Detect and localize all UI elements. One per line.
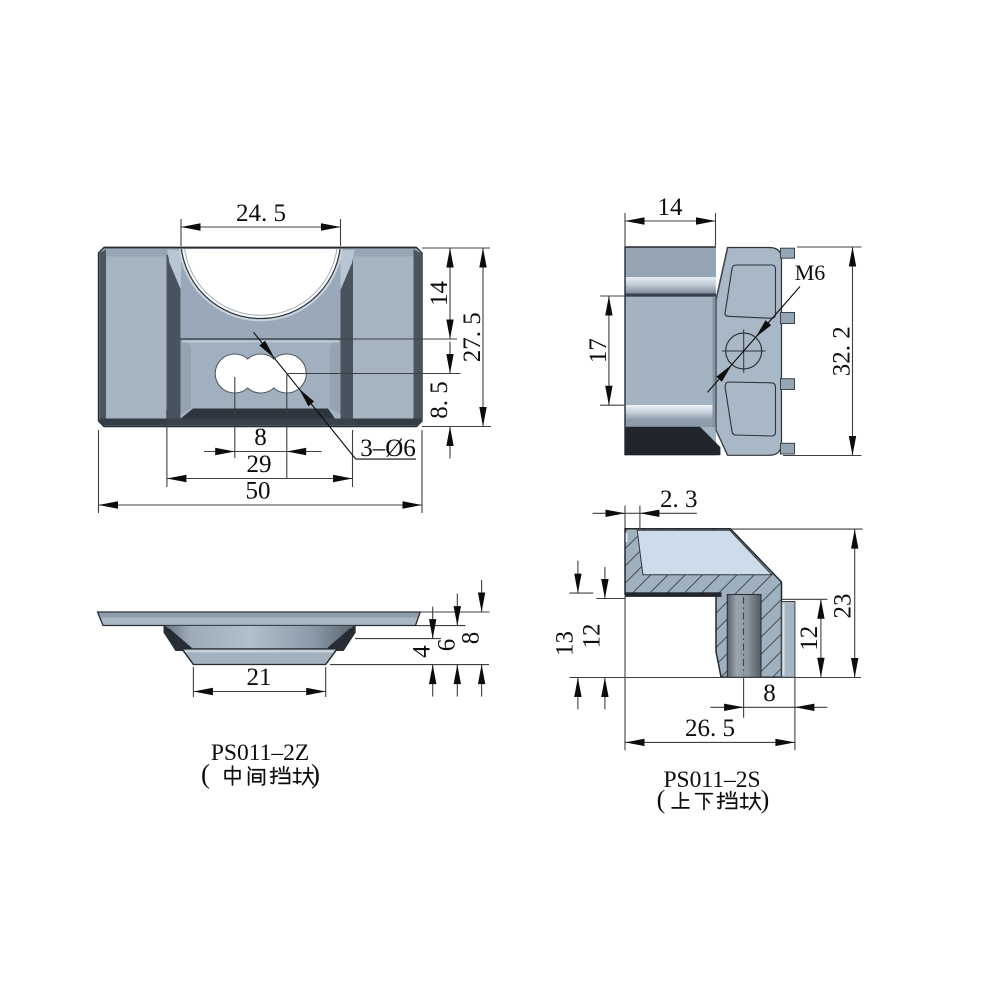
- svg-text:14: 14: [658, 194, 684, 221]
- svg-text:PS011–2S: PS011–2S: [663, 767, 760, 793]
- svg-text:8. 5: 8. 5: [426, 381, 453, 419]
- svg-text:27. 5: 27. 5: [459, 312, 486, 362]
- svg-text:13: 13: [551, 631, 578, 656]
- svg-text:): ): [761, 785, 770, 814]
- svg-text:14: 14: [426, 281, 453, 307]
- svg-text:50: 50: [246, 478, 271, 505]
- svg-text:(: (: [657, 785, 666, 814]
- svg-text:8: 8: [254, 424, 267, 451]
- svg-text:4: 4: [409, 645, 436, 658]
- svg-text:12: 12: [578, 624, 605, 649]
- svg-text:(: (: [201, 759, 210, 789]
- svg-text:2. 3: 2. 3: [660, 486, 698, 513]
- svg-text:26. 5: 26. 5: [685, 715, 735, 742]
- svg-text:12: 12: [796, 626, 823, 651]
- svg-text:17: 17: [585, 338, 612, 363]
- svg-text:M6: M6: [795, 260, 826, 285]
- svg-text:23: 23: [830, 594, 857, 619]
- svg-text:21: 21: [247, 664, 272, 691]
- svg-text:8: 8: [763, 680, 776, 707]
- svg-text:8: 8: [458, 632, 485, 645]
- svg-text:29: 29: [247, 451, 272, 478]
- svg-text:): ): [311, 759, 320, 789]
- svg-text:24. 5: 24. 5: [236, 200, 286, 227]
- svg-text:PS011–2Z: PS011–2Z: [211, 740, 309, 766]
- svg-text:3–Ø6: 3–Ø6: [360, 435, 416, 462]
- svg-text:32. 2: 32. 2: [829, 326, 856, 376]
- svg-text:6: 6: [433, 639, 460, 652]
